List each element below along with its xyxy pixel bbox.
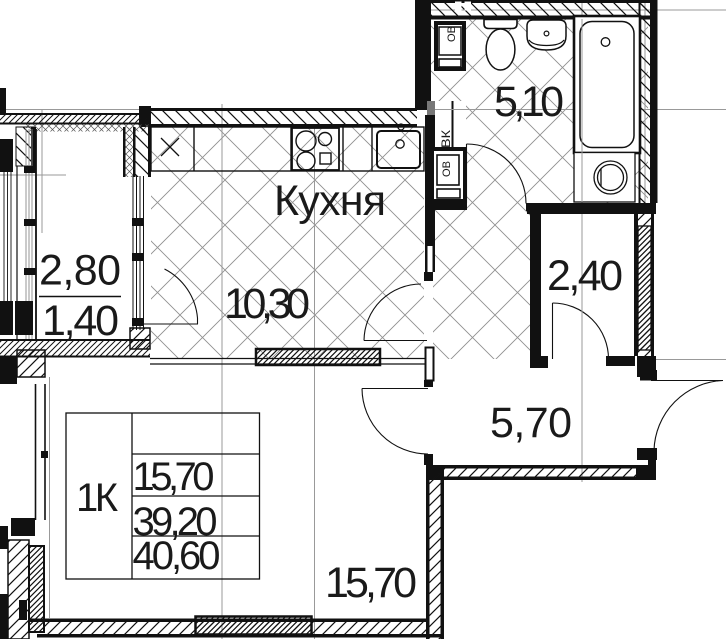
svg-text:10,30: 10,30: [224, 280, 310, 328]
svg-text:ОВ: ОВ: [441, 161, 453, 177]
svg-text:15,70: 15,70: [325, 559, 417, 607]
svg-text:5,10: 5,10: [494, 78, 564, 126]
svg-text:2,80: 2,80: [39, 247, 121, 295]
svg-text:15,70: 15,70: [133, 455, 215, 499]
svg-text:ВК: ВК: [439, 130, 453, 148]
svg-text:1,40: 1,40: [42, 297, 119, 345]
svg-text:1К: 1К: [76, 476, 119, 520]
svg-text:ОВ: ОВ: [446, 26, 458, 42]
svg-text:Кухня: Кухня: [274, 177, 386, 225]
svg-text:2,40: 2,40: [547, 252, 623, 300]
svg-text:40,60: 40,60: [133, 534, 221, 578]
svg-text:5,70: 5,70: [490, 399, 572, 447]
